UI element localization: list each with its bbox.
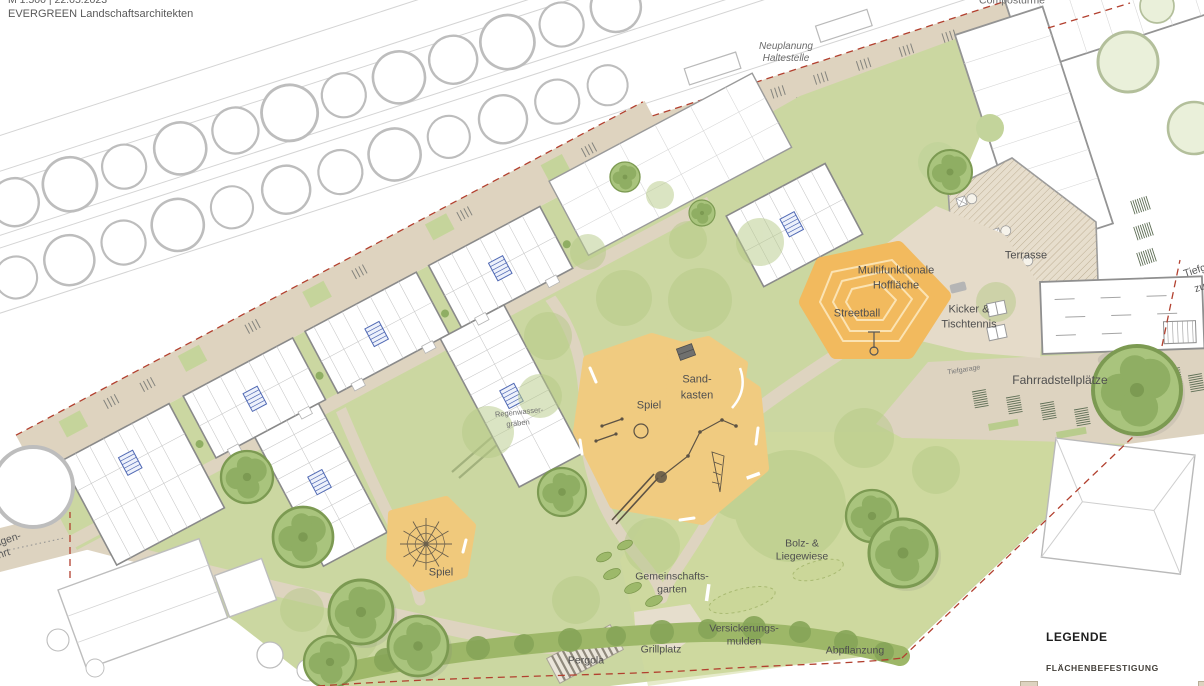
tree-outline	[1098, 32, 1158, 92]
spider-web-playground	[390, 500, 472, 588]
site-plan-canvas: M 1:500 | 22.05.2023 EVERGREEN Landschaf…	[0, 0, 1204, 686]
legend-swatch	[1198, 681, 1204, 686]
site-plan-drawing	[0, 0, 1204, 686]
shelter	[816, 9, 873, 42]
tree-outline	[47, 629, 69, 651]
tree-outline	[86, 659, 104, 677]
shelter	[684, 52, 741, 85]
tree-outline	[1168, 102, 1204, 154]
tree-outline	[257, 642, 283, 668]
existing-building-southeast	[1041, 438, 1195, 574]
sandbox	[662, 340, 744, 420]
tree-outline	[0, 447, 73, 527]
legend-swatch	[1020, 681, 1038, 686]
